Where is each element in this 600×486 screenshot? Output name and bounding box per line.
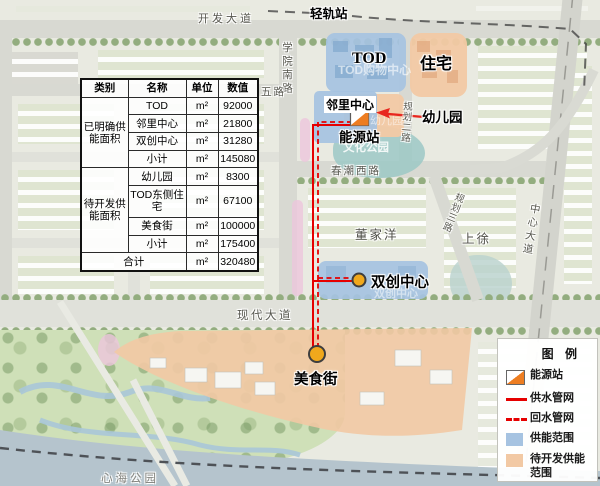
cell-unit: m² — [186, 168, 218, 186]
total-value: 320480 — [218, 253, 258, 271]
legend-label: 能源站 — [530, 369, 563, 382]
legend-item-energy-station: 能源站 — [506, 369, 591, 385]
legend-item-pending-area: 待开发供能范围 — [506, 453, 591, 479]
legend-label: 回水管网 — [530, 412, 574, 425]
label-nengyuanzhan: 能源站 — [339, 126, 380, 146]
cell-name: 小计 — [128, 235, 186, 253]
cell-name: TOD东侧住宅 — [128, 186, 186, 218]
table-total-row: 合计 m² 320480 — [81, 253, 258, 271]
cell-name: 幼儿园 — [128, 168, 186, 186]
label-meishijie: 美食街 — [294, 368, 338, 389]
station-label-qinggui: 轻轨站 — [310, 3, 348, 22]
cell-unit: m² — [186, 97, 218, 115]
cell-name: 邻里中心 — [128, 115, 186, 133]
road-label-xiandai: 现代大道 — [237, 307, 293, 323]
label-shuangchuang: 双创中心 — [371, 271, 429, 292]
solid-line-icon — [506, 398, 527, 401]
legend-label: 待开发供能范围 — [530, 453, 585, 479]
supply-area-table: 类别 名称 单位 数值 已明确供能面积 TOD m² 92000 邻里中心 m²… — [80, 78, 259, 272]
legend: 图 例 能源站 供水管网 回水管网 供能范围 待开发供能范围 — [497, 338, 598, 482]
cell-unit: m² — [186, 115, 218, 133]
cell-value: 100000 — [218, 217, 258, 235]
blue-area-icon — [506, 433, 523, 446]
header-category: 类别 — [81, 79, 128, 97]
cell-unit: m² — [186, 150, 218, 168]
legend-item-return-pipe: 回水管网 — [506, 412, 591, 425]
label-tod: TOD — [352, 50, 386, 68]
cell-name: TOD — [128, 97, 186, 115]
table-header-row: 类别 名称 单位 数值 — [81, 79, 258, 97]
category-confirmed: 已明确供能面积 — [81, 97, 128, 168]
orange-area-icon — [506, 454, 523, 467]
cell-value: 67100 — [218, 186, 258, 218]
total-unit: m² — [186, 253, 218, 271]
cell-value: 145080 — [218, 150, 258, 168]
return-water-pipe — [318, 122, 352, 350]
cell-unit: m² — [186, 133, 218, 151]
legend-item-supply-pipe: 供水管网 — [506, 392, 591, 405]
cell-name: 双创中心 — [128, 133, 186, 151]
header-name: 名称 — [128, 79, 186, 97]
label-zhuzhai: 住宅 — [420, 50, 452, 74]
legend-label: 供水管网 — [530, 392, 574, 405]
cell-name: 小计 — [128, 150, 186, 168]
cell-unit: m² — [186, 217, 218, 235]
road-ramp — [470, 70, 594, 170]
cell-value: 175400 — [218, 235, 258, 253]
energy-station-icon — [506, 370, 525, 385]
total-label: 合计 — [81, 253, 186, 271]
table-row: 待开发供能面积 幼儿园 m² 8300 — [81, 168, 258, 186]
legend-label: 供能范围 — [530, 432, 574, 445]
cell-value: 21800 — [218, 115, 258, 133]
region-foodstreet-pending — [114, 328, 472, 436]
place-label-xinhai: 心海公园 — [101, 470, 159, 486]
road-label-chunchao: 春潮西路 — [331, 163, 381, 178]
foodstreet-marker — [309, 346, 325, 362]
cell-name: 美食街 — [128, 217, 186, 235]
place-label-shangxu: 上徐 — [462, 228, 491, 247]
cell-value: 31280 — [218, 133, 258, 151]
road-label-wulu: 五路 — [261, 84, 286, 99]
legend-title: 图 例 — [506, 345, 591, 362]
legend-item-supply-area: 供能范围 — [506, 432, 591, 446]
label-linli: 邻里中心 — [324, 96, 376, 113]
road-label-kaifa: 开发大道 — [198, 10, 254, 26]
cell-value: 8300 — [218, 168, 258, 186]
shuangchuang-marker — [353, 274, 366, 287]
header-unit: 单位 — [186, 79, 218, 97]
table-row: 已明确供能面积 TOD m² 92000 — [81, 97, 258, 115]
cell-value: 92000 — [218, 97, 258, 115]
dashed-line-icon — [506, 418, 527, 421]
cell-unit: m² — [186, 235, 218, 253]
header-value: 数值 — [218, 79, 258, 97]
category-pending: 待开发供能面积 — [81, 168, 128, 253]
road-label-guihua2: 规划二路 — [397, 101, 414, 144]
label-youeryuan: 幼儿园 — [422, 106, 463, 126]
cell-unit: m² — [186, 186, 218, 218]
place-label-dongjiayang: 董家洋 — [355, 224, 399, 243]
planning-map: TOD购物中心 幼儿园 文化公园 双创中心 开发大道 轻轨站 学院南路 五路 T… — [0, 0, 600, 486]
